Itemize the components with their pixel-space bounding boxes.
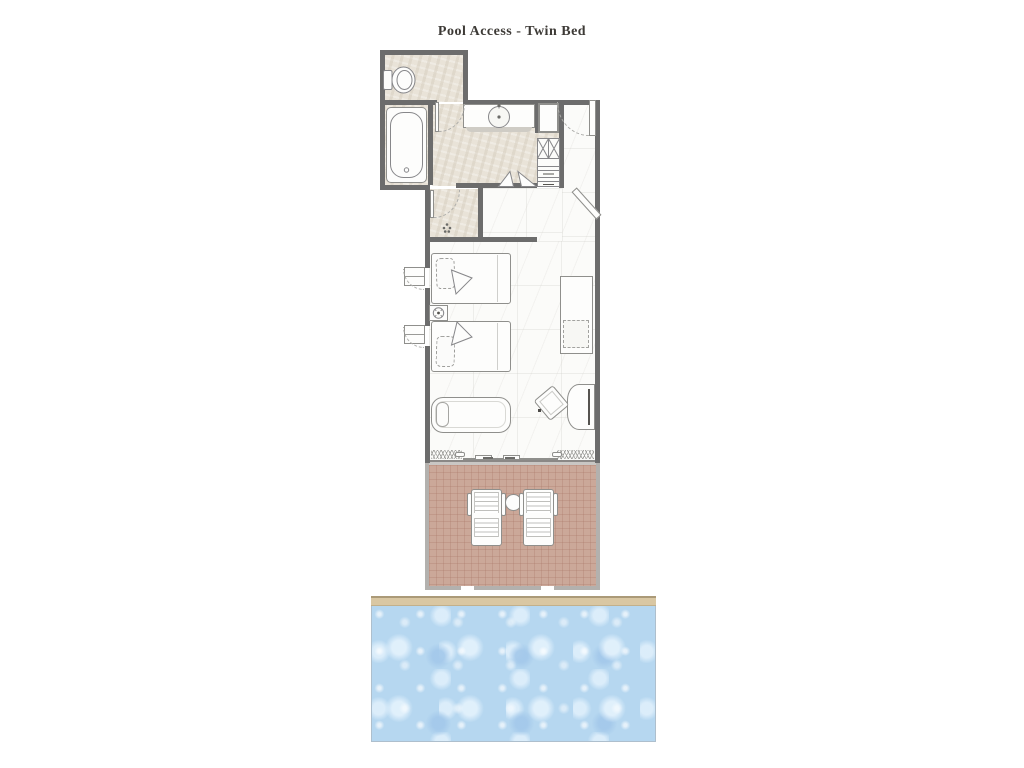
- floorplan-page: Pool Access - Twin Bed: [0, 0, 1024, 768]
- toilet-icon: [384, 67, 416, 93]
- bed-1-throw-icon: [452, 270, 473, 294]
- lamp-icon: [433, 308, 443, 318]
- bed-2-throw-icon: [452, 322, 473, 345]
- luggage-rack-icon: [499, 172, 537, 187]
- bathtub-inner: [391, 113, 423, 178]
- wardrobe-shelves-icon: [538, 139, 560, 187]
- shower-head-icon: [443, 223, 452, 233]
- plan-detail-overlay: [0, 0, 1024, 768]
- sink-basin-icon: [489, 104, 510, 128]
